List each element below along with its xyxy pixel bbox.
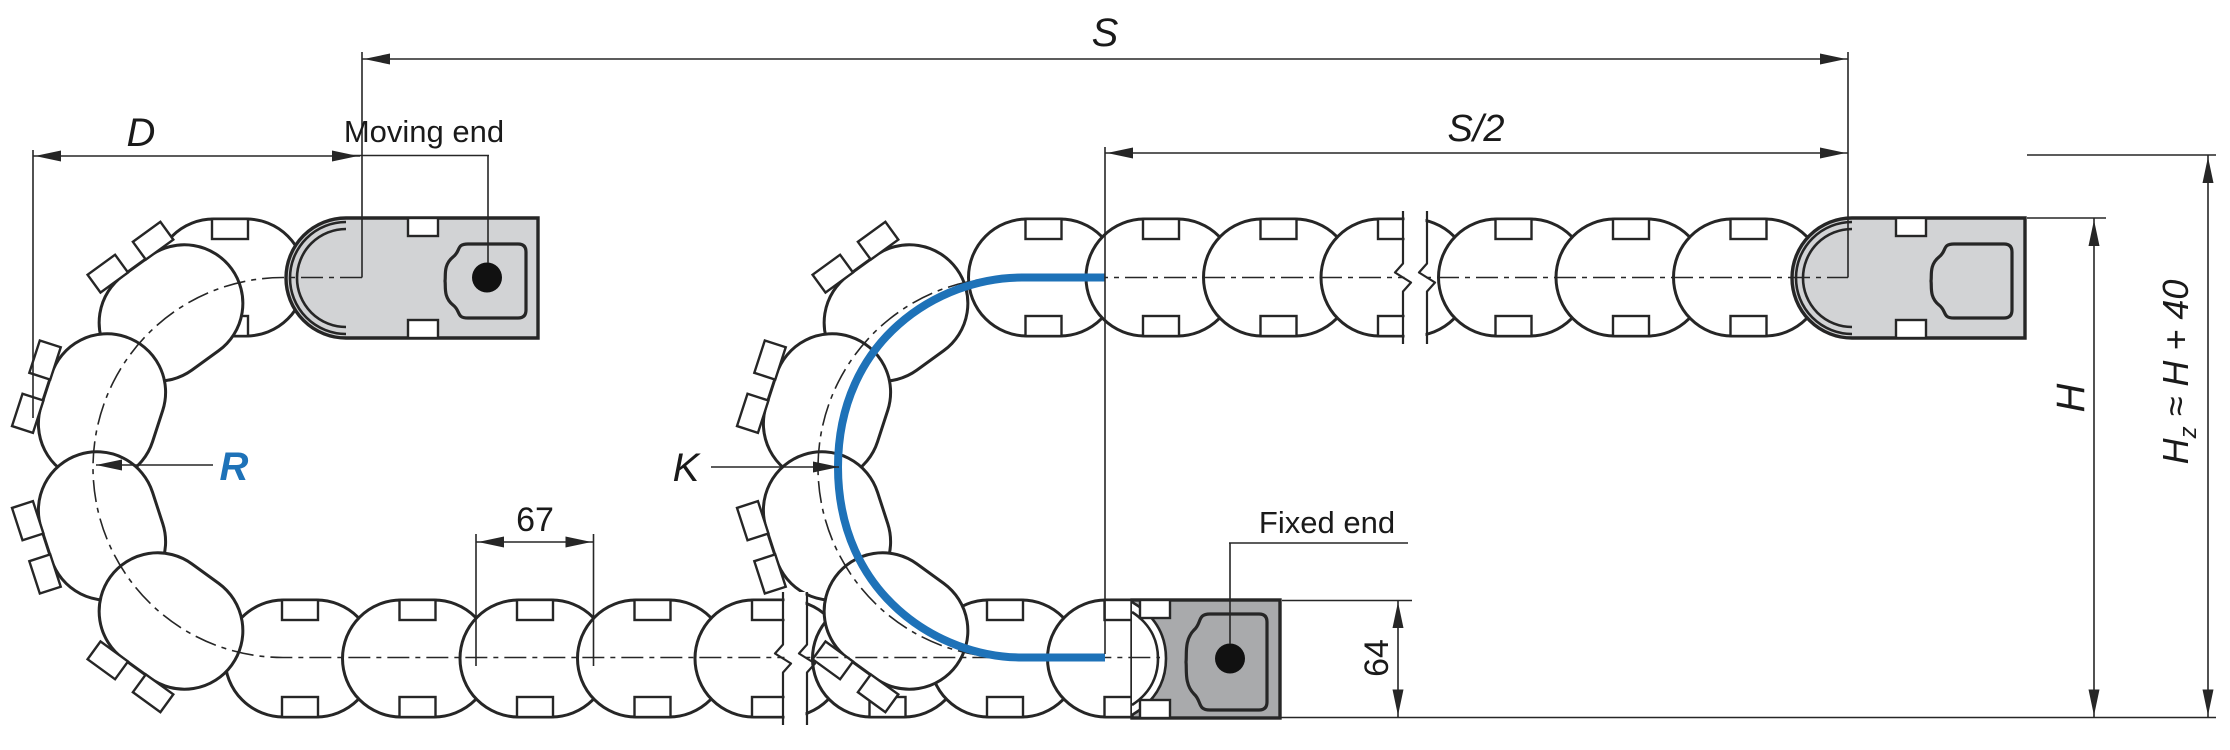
arrowhead-icon [2089,690,2100,716]
fixed-end-block [1132,600,1280,718]
moving-end-block-left [286,218,538,338]
arrowhead-icon [2089,220,2100,246]
technical-drawing-canvas: S S/2 D Moving end Fixed end R K 67 64 H… [0,0,2230,750]
dim-s2-label: S/2 [1447,108,1504,150]
k-label: K [673,446,702,490]
hz-base: H [2155,437,2196,464]
moving-end-block-right [1792,218,2025,338]
arrowhead-icon [1393,602,1404,628]
arrowhead-icon [2203,157,2214,183]
arrowhead-icon [566,537,592,548]
hz-rest: ≈ H + 40 [2155,280,2196,427]
arrowhead-icon [1107,148,1133,159]
dim-64-label: 64 [1358,639,1396,677]
arrowhead-icon [1820,148,1846,159]
arrowhead-icon [1393,690,1404,716]
dim-hz-label: Hz ≈ H + 40 [2155,280,2202,465]
dim-67-label: 67 [516,501,554,539]
arrowhead-icon [35,151,61,162]
cable-carrier-installation-drawing: S S/2 D Moving end Fixed end R K 67 64 H… [0,0,2230,750]
fixation-point-dot [472,263,502,293]
arrowhead-icon [332,151,358,162]
moving-end-label: Moving end [344,114,504,149]
cable-chain [3,204,1824,730]
radius-r-label: R [220,445,249,489]
fixation-point-dot [1215,644,1245,674]
dim-h-label: H [2049,383,2093,412]
dim-s-label: S [1092,11,1119,55]
arrowhead-icon [1820,54,1846,65]
labels: S S/2 D Moving end Fixed end R K 67 64 H… [127,11,2202,677]
dim-d-label: D [127,111,156,155]
hz-subscript: z [2175,426,2202,439]
arrowhead-icon [478,537,504,548]
arrowhead-icon [364,54,390,65]
fixed-end-label: Fixed end [1259,505,1395,540]
arrowhead-icon [2203,690,2214,716]
